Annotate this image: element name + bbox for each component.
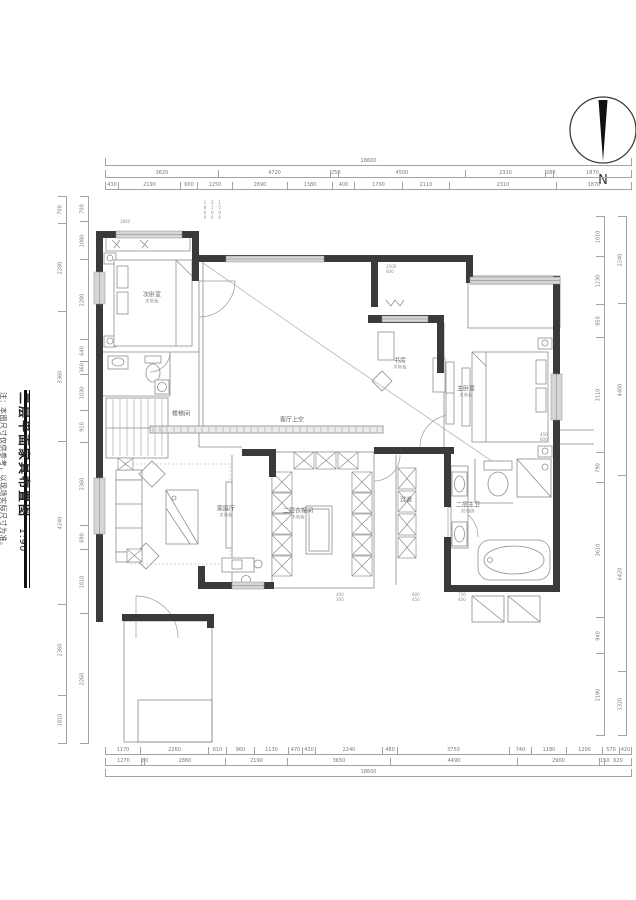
dimension-segment: 910 — [80, 410, 89, 442]
dimension-segment: 4720 — [218, 170, 330, 178]
dimension-segment: 4240 — [58, 441, 67, 604]
room-label-master-bath: 二层主卫防滑砖 — [456, 501, 480, 514]
dimension-segment: 1230 — [596, 256, 605, 304]
callout-c7: 1800 — [120, 219, 130, 224]
dimension-segment: 3360 — [58, 311, 67, 441]
dimension-segment: 570 — [602, 747, 619, 755]
dimension-segment: 2280 — [80, 259, 89, 339]
dimension-segment: 1180 — [531, 747, 566, 755]
dimension-segment: 3110 — [596, 337, 605, 452]
dimension-segment: 1080 — [80, 221, 89, 259]
callout-c1: 180021001500 — [202, 200, 224, 220]
callout-c3: 450600 — [540, 432, 548, 443]
dimension-row-left-inner: 700108022806403601030910236069018102260 — [80, 196, 89, 744]
dimension-segment: 700 — [58, 196, 67, 223]
dimension-row-right-inner: 10101230850311079036109402190 — [596, 216, 605, 736]
dimension-segment: 2860 — [144, 758, 225, 766]
dimension-segment: 2360 — [80, 442, 89, 525]
dimension-row-bottom-inner: 1170226061096011304704302240480375074011… — [105, 747, 632, 755]
dimension-segment: 2360 — [58, 604, 67, 695]
dimension-segment: 420 — [619, 747, 632, 755]
dimension-segment: 740 — [509, 747, 531, 755]
dimension-segment: 2310 — [465, 170, 545, 178]
dimension-segment: 3750 — [397, 747, 509, 755]
dimension-segment: 18600 — [105, 769, 632, 777]
void-diagonal — [203, 263, 505, 470]
dimension-row-bottom-mid: 12708028602190365044902900150620 — [105, 758, 632, 766]
dimension-segment: 480 — [382, 747, 397, 755]
dimension-segment: 400 — [332, 182, 354, 190]
dimension-segment: 1380 — [287, 182, 332, 190]
callout-c6: 750400 — [458, 592, 466, 603]
room-label-nw-bedroom: 次卧室木地板 — [143, 291, 161, 304]
dimension-segment: 2190 — [596, 653, 605, 736]
dimension-segment: 640 — [80, 339, 89, 361]
dimension-segment: 470 — [288, 747, 302, 755]
floorplan-sheet: N 注：本图尺寸仅供参考，以现场实际尺寸为准。 二层平面家具布置图1:90 18… — [0, 0, 636, 900]
room-label-closet: 二层衣帽间木地板 — [283, 507, 313, 520]
dimension-segment: 790 — [596, 452, 605, 482]
dimension-segment: 3610 — [596, 482, 605, 617]
dimension-segment: 3620 — [105, 170, 218, 178]
room-label-stair: 楼梯间 — [172, 410, 190, 418]
dimension-segment: 280 — [545, 170, 553, 178]
dimension-segment: 1320 — [618, 671, 627, 736]
dimension-segment: 960 — [226, 747, 254, 755]
room-label-study: 书房木地板 — [393, 357, 407, 370]
dimension-segment: 360 — [80, 361, 89, 374]
cabinet-boxes — [118, 452, 416, 576]
sheet-scale: 1:90 — [17, 528, 27, 552]
dimension-segment: 2110 — [402, 182, 449, 190]
dimension-row-right-outer: 2240440064201320 — [618, 216, 627, 736]
dimension-segment: 2310 — [449, 182, 556, 190]
dimension-segment: 1250 — [197, 182, 232, 190]
dimension-segment: 1810 — [80, 549, 89, 613]
dimension-segment: 1870 — [553, 170, 632, 178]
dimension-segment: 2260 — [140, 747, 208, 755]
dimension-segment: 1790 — [354, 182, 402, 190]
dimension-segment: 2240 — [618, 216, 627, 303]
dimension-segment: 2240 — [315, 747, 382, 755]
dimension-segment: 4500 — [338, 170, 465, 178]
dimension-segment: 610 — [208, 747, 226, 755]
sheet-title: 二层平面家具布置图1:90 — [16, 392, 33, 552]
dimension-row-top-inner: 4302190600125026901380400179021102310187… — [105, 182, 632, 190]
dimension-segment: 700 — [80, 196, 89, 221]
dimension-row-bottom-total: 18600 — [105, 769, 632, 777]
dimension-segment: 1130 — [254, 747, 288, 755]
dimension-segment: 620 — [604, 758, 632, 766]
dimension-segment: 1200 — [566, 747, 602, 755]
room-label-corridor: 过道 — [400, 496, 412, 504]
dimension-row-top-mid: 36204720250450023102801870 — [105, 170, 632, 178]
room-label-void: 客厅上空 — [280, 416, 304, 424]
dimension-segment: 690 — [80, 525, 89, 549]
dimension-segment: 850 — [596, 304, 605, 337]
dimension-segment: 4490 — [390, 758, 517, 766]
dimension-segment: 6420 — [618, 475, 627, 671]
dimension-segment: 2690 — [232, 182, 287, 190]
dimension-segment: 2280 — [58, 223, 67, 311]
dimension-segment: 1870 — [556, 182, 632, 190]
dimension-segment: 2260 — [80, 613, 89, 744]
dimension-segment: 250 — [330, 170, 338, 178]
dimension-segment: 1170 — [105, 747, 140, 755]
callout-c5: 600450 — [412, 592, 420, 603]
dimension-row-left-outer: 70022803360424023601810 — [58, 196, 67, 744]
dimension-segment: 4400 — [618, 303, 627, 475]
callout-c4: 400300 — [336, 592, 344, 603]
dimension-segment: 600 — [180, 182, 197, 190]
dimension-segment: 1010 — [596, 216, 605, 256]
callout-c2: 1500600 — [386, 264, 396, 275]
dimension-segment: 18600 — [105, 158, 632, 166]
sheet-title-text: 二层平面家具布置图 — [17, 392, 31, 518]
sheet-note: 注：本图尺寸仅供参考，以现场实际尺寸为准。 — [0, 392, 8, 550]
room-label-master-bedroom: 主卧室木地板 — [457, 385, 475, 398]
room-label-family: 家庭厅木地板 — [217, 505, 235, 518]
dimension-segment: 3650 — [287, 758, 390, 766]
dimension-row-top-total: 18600 — [105, 158, 632, 166]
dimension-segment: 1810 — [58, 695, 67, 744]
dimension-segment: 2190 — [225, 758, 287, 766]
north-needle-icon — [599, 100, 608, 161]
dimension-segment: 430 — [302, 747, 315, 755]
dimension-segment: 2900 — [517, 758, 599, 766]
dimension-segment: 1270 — [105, 758, 141, 766]
dimension-segment: 430 — [105, 182, 118, 190]
dimension-segment: 940 — [596, 617, 605, 653]
dimension-segment: 1030 — [80, 374, 89, 410]
dimension-segment: 2190 — [118, 182, 180, 190]
